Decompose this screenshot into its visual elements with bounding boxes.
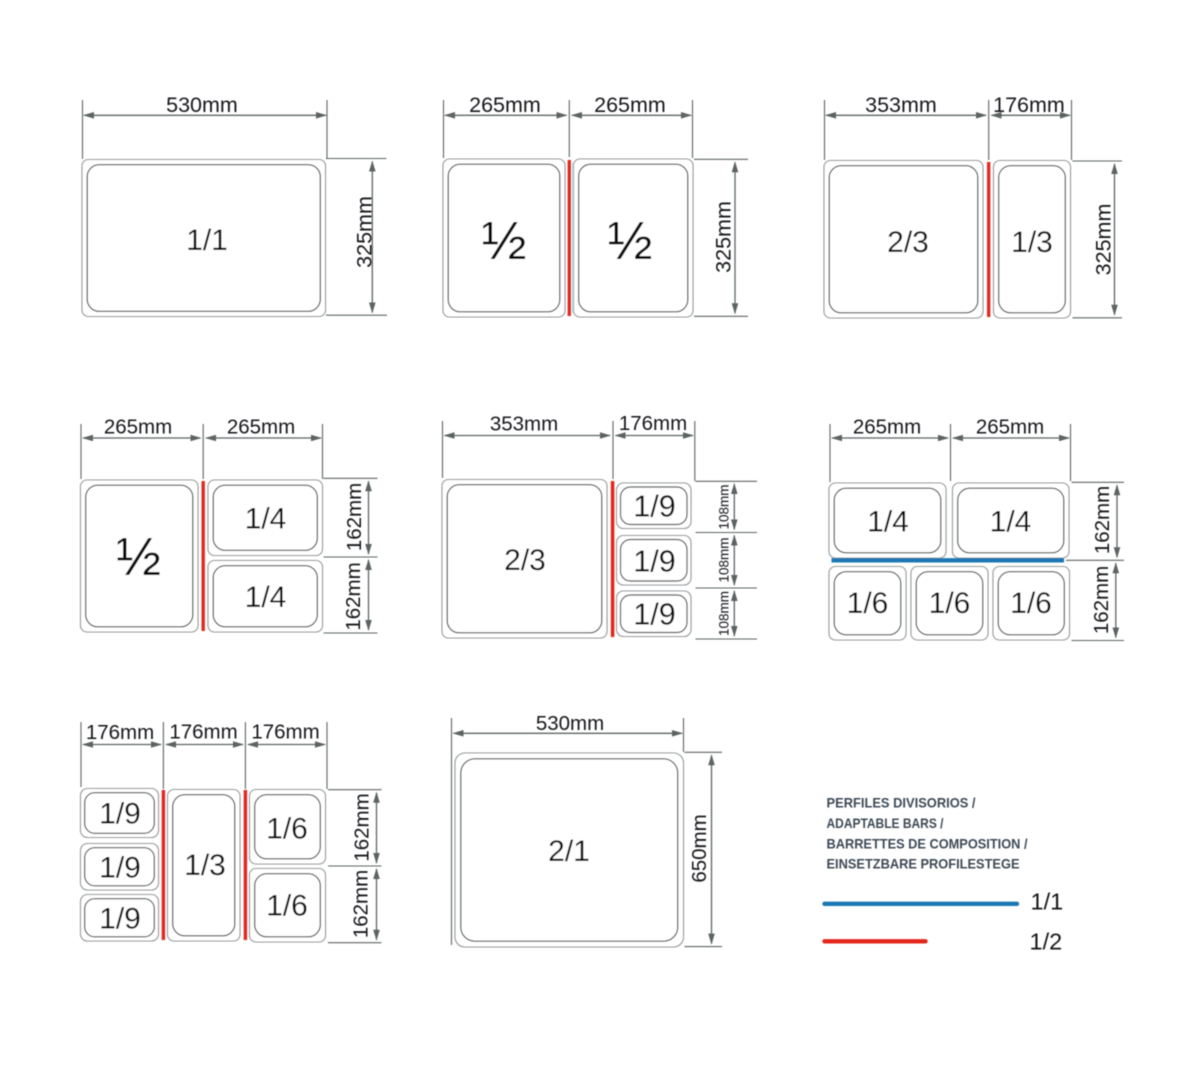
svg-text:1/6: 1/6	[266, 812, 308, 845]
svg-text:265mm: 265mm	[594, 93, 666, 117]
svg-text:176mm: 176mm	[169, 721, 237, 744]
svg-text:1/9: 1/9	[99, 902, 141, 935]
svg-text:EINSETZBARE PROFILESTEGE: EINSETZBARE PROFILESTEGE	[827, 856, 1020, 872]
svg-text:1/2: 1/2	[1030, 929, 1063, 955]
svg-text:BARRETTES DE COMPOSITION /: BARRETTES DE COMPOSITION /	[827, 835, 1028, 851]
svg-text:1/4: 1/4	[867, 505, 909, 538]
svg-text:½: ½	[116, 527, 161, 587]
svg-text:1/4: 1/4	[245, 502, 287, 535]
svg-text:1/6: 1/6	[929, 587, 971, 620]
svg-text:176mm: 176mm	[993, 93, 1065, 117]
svg-text:650mm: 650mm	[688, 814, 711, 882]
svg-text:176mm: 176mm	[251, 721, 319, 744]
svg-text:108mm: 108mm	[716, 537, 731, 582]
svg-text:1/3: 1/3	[184, 849, 226, 882]
svg-text:2/3: 2/3	[887, 226, 929, 259]
svg-text:1/4: 1/4	[990, 505, 1032, 538]
svg-text:162mm: 162mm	[1091, 486, 1114, 554]
svg-text:1/6: 1/6	[1010, 587, 1052, 620]
svg-text:ADAPTABLE BARS /: ADAPTABLE BARS /	[827, 815, 944, 831]
svg-text:162mm: 162mm	[1090, 566, 1113, 634]
svg-text:1/6: 1/6	[847, 587, 889, 620]
svg-text:1/6: 1/6	[266, 889, 308, 922]
svg-text:½: ½	[481, 211, 526, 271]
svg-text:325mm: 325mm	[1091, 204, 1115, 276]
svg-text:1/9: 1/9	[633, 545, 675, 579]
svg-text:½: ½	[607, 211, 652, 271]
svg-text:1/3: 1/3	[1011, 226, 1053, 259]
svg-text:1/9: 1/9	[99, 797, 141, 830]
svg-text:353mm: 353mm	[490, 413, 558, 436]
svg-text:265mm: 265mm	[104, 416, 172, 439]
svg-text:1/4: 1/4	[245, 581, 287, 614]
svg-text:PERFILES DIVISORIOS /: PERFILES DIVISORIOS /	[827, 795, 976, 811]
svg-text:265mm: 265mm	[469, 93, 541, 117]
svg-text:530mm: 530mm	[536, 712, 604, 735]
svg-text:265mm: 265mm	[853, 416, 921, 439]
svg-text:162mm: 162mm	[343, 483, 366, 551]
svg-text:176mm: 176mm	[619, 412, 687, 435]
svg-text:353mm: 353mm	[865, 93, 937, 117]
svg-text:1/9: 1/9	[99, 851, 141, 884]
svg-text:265mm: 265mm	[976, 416, 1044, 439]
svg-text:1/9: 1/9	[633, 598, 675, 632]
svg-text:2/1: 2/1	[548, 835, 590, 868]
svg-text:108mm: 108mm	[716, 591, 731, 636]
svg-text:530mm: 530mm	[166, 93, 238, 117]
svg-text:325mm: 325mm	[352, 196, 376, 268]
svg-text:162mm: 162mm	[350, 793, 373, 861]
svg-text:265mm: 265mm	[227, 416, 295, 439]
svg-text:176mm: 176mm	[86, 721, 154, 744]
svg-text:1/9: 1/9	[633, 490, 675, 524]
svg-text:162mm: 162mm	[349, 870, 372, 938]
svg-text:108mm: 108mm	[716, 484, 731, 529]
svg-text:162mm: 162mm	[342, 562, 365, 630]
svg-text:1/1: 1/1	[186, 224, 228, 257]
svg-text:2/3: 2/3	[504, 544, 546, 577]
svg-text:325mm: 325mm	[711, 201, 735, 273]
svg-text:1/1: 1/1	[1031, 889, 1064, 915]
